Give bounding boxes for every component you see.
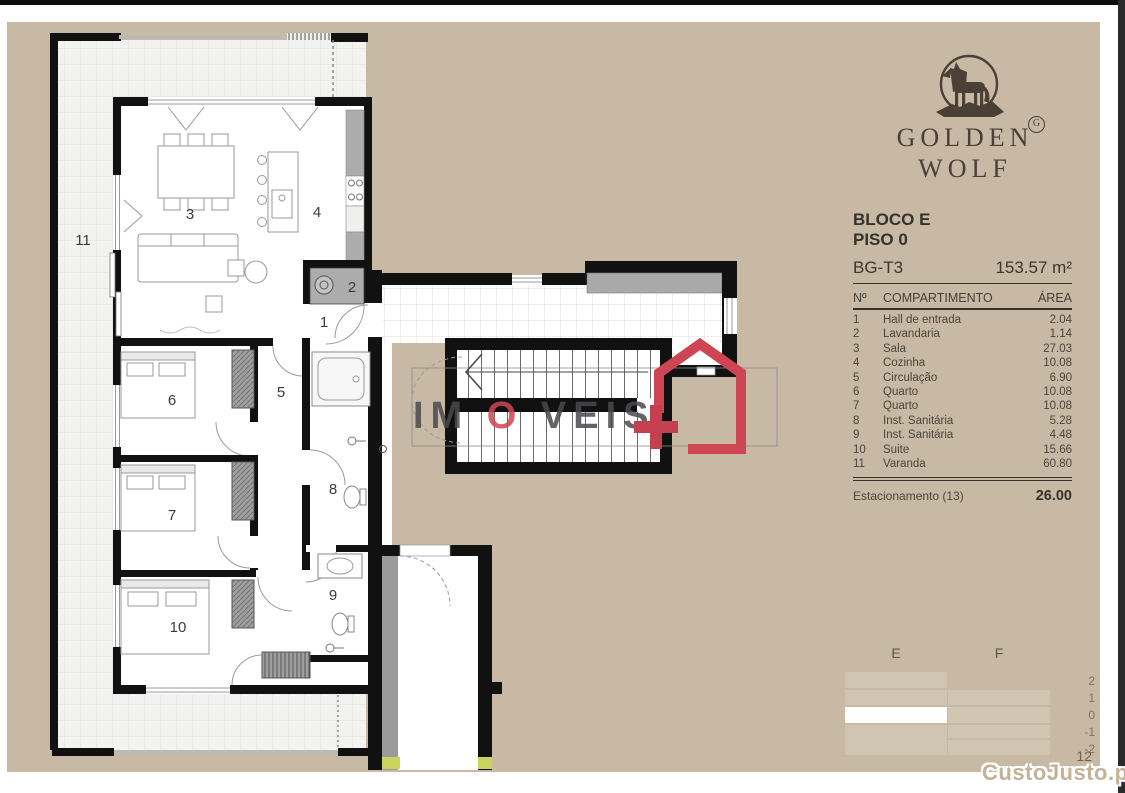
room-label-8: 8 xyxy=(329,481,337,498)
room-label-9: 9 xyxy=(329,587,337,604)
level-label-minus1: -1 xyxy=(1073,725,1095,739)
room-label-2: 2 xyxy=(348,279,356,296)
divider xyxy=(853,308,1072,310)
kitchen-counter xyxy=(346,110,364,262)
row-n: 1 xyxy=(853,313,883,327)
row-area: 27.03 xyxy=(1043,342,1072,356)
level-label-2: 2 xyxy=(1073,674,1095,688)
room-label-11: 11 xyxy=(75,232,91,249)
row-area: 60.80 xyxy=(1043,457,1072,471)
table-row: 9Inst. Sanitária4.48 xyxy=(853,428,1072,442)
room-label-4: 4 xyxy=(313,204,321,221)
row-name: Sala xyxy=(883,342,1043,356)
screenshot-root: 1 2 3 4 5 6 7 8 9 10 11 IM O VEIS xyxy=(0,0,1125,793)
table-row: 3Sala27.03 xyxy=(853,342,1072,356)
row-n: 6 xyxy=(853,385,883,399)
row-area: 10.08 xyxy=(1043,399,1072,413)
row-name: Quarto xyxy=(883,385,1043,399)
bar-f-level1 xyxy=(948,690,1050,705)
row-name: Inst. Sanitária xyxy=(883,428,1050,442)
bedroom-6-furniture xyxy=(121,350,254,418)
row-name: Varanda xyxy=(883,457,1043,471)
custojusto-watermark: CustoJusto.pt xyxy=(982,760,1125,786)
parking-label: Estacionamento (13) xyxy=(853,489,964,503)
block-name: BLOCO E xyxy=(853,210,930,230)
row-n: 10 xyxy=(853,443,883,457)
brand-registered-mark: G xyxy=(1028,116,1045,133)
brand-name: GOLDEN WOLF xyxy=(895,122,1035,184)
divider xyxy=(853,283,1072,284)
bar-e-basement xyxy=(845,725,947,755)
unit-code: BG-T3 xyxy=(853,258,903,278)
apartment-block xyxy=(110,97,395,770)
bar-f-level-2 xyxy=(948,740,1050,755)
room-label-6: 6 xyxy=(168,392,176,409)
col-number: Nº xyxy=(853,291,883,305)
row-n: 8 xyxy=(853,414,883,428)
row-name: Circulação xyxy=(883,371,1050,385)
row-n: 2 xyxy=(853,327,883,341)
bar-e-level0-highlighted xyxy=(845,707,947,723)
table-footer: Estacionamento (13) 26.00 xyxy=(853,488,1072,504)
unit-total-area: 153.57 m² xyxy=(995,258,1072,278)
row-area: 1.14 xyxy=(1050,327,1072,341)
row-area: 5.28 xyxy=(1050,414,1072,428)
row-area: 4.48 xyxy=(1050,428,1072,442)
row-area: 15.66 xyxy=(1043,443,1072,457)
room-label-1: 1 xyxy=(320,314,328,331)
watermark-im: IM xyxy=(413,395,469,437)
room-label-5: 5 xyxy=(277,384,285,401)
bar-e-level1 xyxy=(845,690,947,705)
parking-area: 26.00 xyxy=(1036,488,1072,504)
row-n: 9 xyxy=(853,428,883,442)
row-n: 4 xyxy=(853,356,883,370)
table-row: 8Inst. Sanitária5.28 xyxy=(853,414,1072,428)
table-row: 5Circulação6.90 xyxy=(853,371,1072,385)
elevation-col-e: E xyxy=(845,645,947,661)
room-label-7: 7 xyxy=(168,507,176,524)
elevation-col-f: F xyxy=(948,645,1050,661)
table-row: 11Varanda60.80 xyxy=(853,457,1072,471)
unit-row: BG-T3 153.57 m² xyxy=(853,258,1072,278)
row-n: 3 xyxy=(853,342,883,356)
table-row: 2Lavandaria1.14 xyxy=(853,327,1072,341)
table-row: 6Quarto10.08 xyxy=(853,385,1072,399)
wolf-silhouette xyxy=(942,62,989,107)
row-area: 10.08 xyxy=(1043,385,1072,399)
exterior-passage xyxy=(382,545,502,770)
row-name: Inst. Sanitária xyxy=(883,414,1050,428)
row-name: Hall de entrada xyxy=(883,313,1050,327)
row-area: 6.90 xyxy=(1050,371,1072,385)
brand-line-2: WOLF xyxy=(895,153,1035,184)
row-name: Cozinha xyxy=(883,356,1043,370)
row-name: Suite xyxy=(883,443,1043,457)
row-area: 10.08 xyxy=(1043,356,1072,370)
table-row: 10Suite15.66 xyxy=(853,443,1072,457)
table-row: 1Hall de entrada2.04 xyxy=(853,313,1072,327)
bar-f-level0 xyxy=(948,707,1050,723)
svg-text:IM O VEIS: IM O VEIS xyxy=(413,395,656,437)
col-compartment: COMPARTIMENTO xyxy=(883,291,1038,305)
bar-f-level-1 xyxy=(948,725,1050,738)
elevation-key: E F 2 1 0 -1 -2 xyxy=(845,645,1095,770)
brand-line-1: GOLDEN xyxy=(895,122,1035,153)
table-row: 4Cozinha10.08 xyxy=(853,356,1072,370)
double-divider xyxy=(853,477,1072,481)
row-name: Lavandaria xyxy=(883,327,1050,341)
bar-e-level2 xyxy=(845,672,947,688)
row-area: 2.04 xyxy=(1050,313,1072,327)
table-header: Nº COMPARTIMENTO ÁREA xyxy=(853,291,1072,305)
level-label-1: 1 xyxy=(1073,691,1095,705)
table-row: 7Quarto10.08 xyxy=(853,399,1072,413)
room-label-10: 10 xyxy=(170,619,187,636)
row-n: 11 xyxy=(853,457,883,471)
common-corridor-stairwell xyxy=(335,261,777,474)
level-label-0: 0 xyxy=(1073,708,1095,722)
watermark-o: O xyxy=(487,395,524,437)
compartment-table: 1Hall de entrada2.04 2Lavandaria1.14 3Sa… xyxy=(853,313,1072,471)
block-header: BLOCO E PISO 0 xyxy=(853,210,930,250)
room-label-3: 3 xyxy=(186,206,194,223)
floor-name: PISO 0 xyxy=(853,230,930,250)
golden-wolf-logo xyxy=(936,56,1004,117)
row-name: Quarto xyxy=(883,399,1043,413)
row-n: 7 xyxy=(853,399,883,413)
row-n: 5 xyxy=(853,371,883,385)
col-area: ÁREA xyxy=(1038,291,1072,305)
dining-table xyxy=(158,134,234,210)
